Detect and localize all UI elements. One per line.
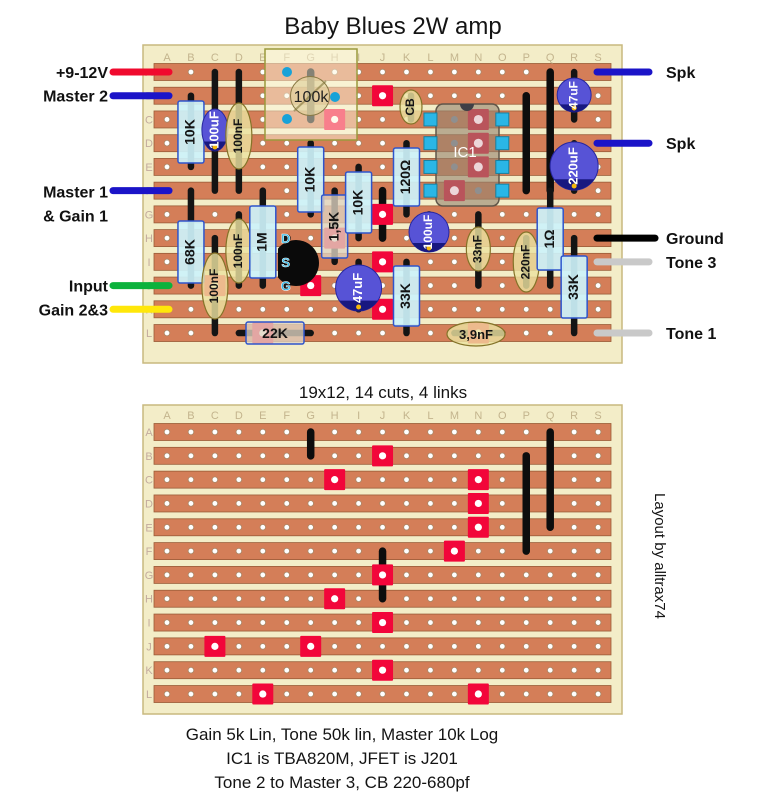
hole <box>500 69 506 75</box>
hole <box>428 691 434 697</box>
hole <box>188 307 194 313</box>
hole <box>164 140 170 146</box>
row-label: H <box>145 233 153 245</box>
ic-pad <box>496 137 509 150</box>
hole <box>500 429 506 435</box>
hole <box>595 596 601 602</box>
hole <box>452 691 458 697</box>
ic-pad <box>496 160 509 173</box>
hole <box>476 453 482 459</box>
hole <box>523 330 529 336</box>
column-label: A <box>163 410 171 422</box>
hole <box>188 691 194 697</box>
hole <box>452 501 458 507</box>
hole <box>500 524 506 530</box>
hole <box>284 644 290 650</box>
column-label: Q <box>546 52 555 64</box>
hole <box>260 620 266 626</box>
hole <box>595 644 601 650</box>
wire-label: Ground <box>666 231 724 248</box>
column-label: F <box>283 410 290 422</box>
component-value: 33nF <box>471 235 485 263</box>
hole <box>380 140 386 146</box>
hole <box>428 524 434 530</box>
wire-label: Input <box>69 279 109 296</box>
hole <box>308 691 314 697</box>
hole <box>356 691 362 697</box>
track-cut-hole <box>379 211 386 218</box>
column-label: N <box>474 410 482 422</box>
hole <box>523 572 529 578</box>
component-value: 3,9nF <box>459 327 493 342</box>
track-cut-hole <box>451 548 458 555</box>
hole <box>236 453 242 459</box>
wire-label: Master 1 <box>43 185 108 202</box>
track-cut-hole <box>259 690 266 697</box>
component-value: 220nF <box>518 245 532 280</box>
hole <box>523 429 529 435</box>
hole <box>260 429 266 435</box>
hole <box>212 524 218 530</box>
hole <box>428 501 434 507</box>
hole <box>164 477 170 483</box>
hole <box>500 596 506 602</box>
hole <box>380 644 386 650</box>
hole <box>500 691 506 697</box>
component-value: 22K <box>262 325 288 341</box>
ic-pin <box>474 162 483 171</box>
hole <box>404 235 410 241</box>
hole <box>164 429 170 435</box>
hole <box>284 140 290 146</box>
ic-label: IC1 <box>453 144 476 161</box>
hole <box>260 307 266 313</box>
hole <box>332 164 338 170</box>
hole <box>236 596 242 602</box>
hole <box>284 477 290 483</box>
hole <box>404 667 410 673</box>
jfet-pin-label: D <box>281 231 290 246</box>
hole <box>188 501 194 507</box>
hole <box>547 691 553 697</box>
wire-label: Tone 1 <box>666 326 716 343</box>
hole <box>188 572 194 578</box>
hole <box>404 572 410 578</box>
hole <box>404 548 410 554</box>
column-label: P <box>523 410 530 422</box>
wire-label: Spk <box>666 136 695 153</box>
hole <box>571 691 577 697</box>
hole <box>332 330 338 336</box>
component-value: 100uF <box>421 215 435 250</box>
hole <box>164 330 170 336</box>
row-label: L <box>146 689 152 701</box>
hole <box>500 235 506 241</box>
column-label: I <box>357 410 360 422</box>
hole <box>164 259 170 265</box>
hole <box>212 596 218 602</box>
hole <box>476 69 482 75</box>
hole <box>571 501 577 507</box>
hole <box>236 524 242 530</box>
jfet-pin-label: G <box>281 279 291 294</box>
hole <box>212 667 218 673</box>
component-value: 100nF <box>231 119 245 154</box>
notes-block: Gain 5k Lin, Tone 50k lin, Master 10k Lo… <box>0 723 722 795</box>
hole <box>356 501 362 507</box>
hole <box>356 453 362 459</box>
hole <box>500 548 506 554</box>
row-label: D <box>145 138 153 150</box>
hole <box>260 140 266 146</box>
board-stats-caption: 19x12, 14 cuts, 4 links <box>3 383 760 403</box>
column-label: K <box>403 52 411 64</box>
hole <box>164 572 170 578</box>
hole <box>284 548 290 554</box>
row-label: H <box>145 594 153 606</box>
hole <box>404 69 410 75</box>
pot-lug <box>282 114 292 124</box>
hole <box>188 667 194 673</box>
hole <box>500 283 506 289</box>
hole <box>428 453 434 459</box>
hole <box>356 330 362 336</box>
hole <box>188 524 194 530</box>
component-value: 10K <box>349 190 365 216</box>
hole <box>356 477 362 483</box>
row-label: D <box>145 498 153 510</box>
hole <box>380 691 386 697</box>
hole <box>236 572 242 578</box>
hole <box>404 477 410 483</box>
hole <box>595 548 601 554</box>
hole <box>452 667 458 673</box>
track-cut-hole <box>379 571 386 578</box>
row-label: K <box>145 665 153 677</box>
column-label: E <box>259 410 266 422</box>
hole <box>404 644 410 650</box>
component-value: CB <box>403 98 417 116</box>
ic-pin <box>451 163 458 170</box>
hole <box>500 667 506 673</box>
hole <box>452 259 458 265</box>
hole <box>260 548 266 554</box>
hole <box>332 667 338 673</box>
component-value: 33K <box>565 274 581 300</box>
hole <box>476 620 482 626</box>
cap-polarity-mark <box>356 305 361 310</box>
hole <box>547 596 553 602</box>
hole <box>500 572 506 578</box>
hole <box>595 501 601 507</box>
column-label: C <box>211 410 219 422</box>
hole <box>428 307 434 313</box>
hole <box>452 453 458 459</box>
hole <box>476 644 482 650</box>
hole <box>284 596 290 602</box>
hole <box>212 453 218 459</box>
component-value: 47uF <box>566 81 580 109</box>
hole <box>260 164 266 170</box>
hole <box>404 524 410 530</box>
column-label: R <box>570 52 578 64</box>
hole <box>571 596 577 602</box>
hole <box>428 572 434 578</box>
hole <box>452 524 458 530</box>
column-label: R <box>570 410 578 422</box>
hole <box>595 212 601 218</box>
hole <box>356 140 362 146</box>
hole <box>452 283 458 289</box>
column-label: D <box>235 410 243 422</box>
hole <box>236 429 242 435</box>
hole <box>380 501 386 507</box>
hole <box>188 330 194 336</box>
hole <box>212 477 218 483</box>
hole <box>260 572 266 578</box>
hole <box>212 548 218 554</box>
component-value: 33K <box>397 283 413 309</box>
hole <box>308 235 314 241</box>
hole <box>428 477 434 483</box>
hole <box>476 572 482 578</box>
hole <box>164 212 170 218</box>
hole <box>595 691 601 697</box>
hole <box>571 524 577 530</box>
hole <box>332 644 338 650</box>
hole <box>452 307 458 313</box>
column-label: N <box>474 52 482 64</box>
hole <box>500 212 506 218</box>
hole <box>452 93 458 99</box>
column-label: L <box>427 52 433 64</box>
hole <box>164 164 170 170</box>
wire-label: +9-12V <box>56 65 108 82</box>
hole <box>380 69 386 75</box>
ic-pad <box>424 113 437 126</box>
hole <box>428 620 434 626</box>
hole <box>236 644 242 650</box>
component-value: 10K <box>182 119 198 145</box>
pot-lug <box>330 92 340 102</box>
component-value: 100uF <box>206 111 221 149</box>
hole <box>595 620 601 626</box>
hole <box>571 477 577 483</box>
track-cut-hole <box>331 476 338 483</box>
hole <box>452 69 458 75</box>
hole <box>284 212 290 218</box>
column-label: M <box>450 52 459 64</box>
hole <box>428 429 434 435</box>
hole <box>356 644 362 650</box>
wire-label: & Gain 1 <box>43 209 108 226</box>
hole <box>332 140 338 146</box>
column-label: P <box>523 52 530 64</box>
hole <box>164 691 170 697</box>
hole <box>500 307 506 313</box>
column-label: L <box>427 410 433 422</box>
track-cut-hole <box>331 595 338 602</box>
wire-label: Spk <box>666 65 695 82</box>
hole <box>428 548 434 554</box>
hole <box>452 620 458 626</box>
hole <box>428 259 434 265</box>
hole <box>212 501 218 507</box>
hole <box>452 572 458 578</box>
hole <box>500 644 506 650</box>
hole <box>523 644 529 650</box>
ic-pad <box>496 113 509 126</box>
hole <box>260 667 266 673</box>
hole <box>380 117 386 123</box>
note-line: Gain 5k Lin, Tone 50k lin, Master 10k Lo… <box>0 723 722 747</box>
hole <box>380 477 386 483</box>
column-label: A <box>163 52 171 64</box>
hole <box>452 477 458 483</box>
ic-pad <box>424 160 437 173</box>
row-label: E <box>145 162 152 174</box>
track-cut-hole <box>307 282 314 289</box>
hole <box>284 188 290 194</box>
column-label: J <box>380 410 386 422</box>
hole <box>500 620 506 626</box>
hole <box>164 667 170 673</box>
hole <box>428 644 434 650</box>
track-cut-hole <box>475 690 482 697</box>
hole <box>236 667 242 673</box>
hole <box>547 644 553 650</box>
ic-pin <box>474 115 483 124</box>
hole <box>500 477 506 483</box>
column-label: O <box>498 52 507 64</box>
hole <box>308 667 314 673</box>
hole <box>452 212 458 218</box>
hole <box>332 429 338 435</box>
hole <box>428 667 434 673</box>
column-label: Q <box>546 410 555 422</box>
hole <box>523 69 529 75</box>
hole <box>571 620 577 626</box>
track-cut-hole <box>475 476 482 483</box>
hole <box>260 501 266 507</box>
hole <box>212 572 218 578</box>
hole <box>236 477 242 483</box>
hole <box>500 453 506 459</box>
hole <box>476 429 482 435</box>
hole <box>404 429 410 435</box>
ic-pad <box>424 184 437 197</box>
hole <box>284 501 290 507</box>
hole <box>308 572 314 578</box>
hole <box>595 93 601 99</box>
hole <box>188 596 194 602</box>
hole <box>188 429 194 435</box>
row-label: G <box>145 209 154 221</box>
hole <box>284 164 290 170</box>
column-label: K <box>403 410 411 422</box>
pot-lug <box>282 67 292 77</box>
row-label: I <box>147 257 150 269</box>
hole <box>500 259 506 265</box>
hole <box>571 453 577 459</box>
hole <box>476 93 482 99</box>
column-label: H <box>331 410 339 422</box>
hole <box>308 501 314 507</box>
hole <box>547 667 553 673</box>
hole <box>356 572 362 578</box>
hole <box>523 620 529 626</box>
hole <box>236 620 242 626</box>
component-value: 68K <box>182 239 198 265</box>
hole <box>164 596 170 602</box>
hole <box>380 330 386 336</box>
hole <box>452 644 458 650</box>
hole <box>595 307 601 313</box>
hole <box>332 548 338 554</box>
hole <box>571 644 577 650</box>
hole <box>595 188 601 194</box>
column-label: B <box>187 52 194 64</box>
component-value: 100nF <box>207 269 221 304</box>
hole <box>164 548 170 554</box>
hole <box>284 453 290 459</box>
hole <box>284 429 290 435</box>
track-cut-hole <box>475 524 482 531</box>
hole <box>356 667 362 673</box>
ic-pin <box>450 186 459 195</box>
hole <box>212 691 218 697</box>
hole <box>236 691 242 697</box>
track-cut-hole <box>379 306 386 313</box>
column-label: S <box>594 52 601 64</box>
hole <box>332 572 338 578</box>
component-value: 1Ω <box>541 229 557 248</box>
hole <box>571 212 577 218</box>
hole <box>260 644 266 650</box>
hole <box>380 429 386 435</box>
note-line: Tone 2 to Master 3, CB 220-680pf <box>0 771 722 795</box>
column-label: G <box>306 410 315 422</box>
hole <box>595 117 601 123</box>
hole <box>308 548 314 554</box>
component-value: 100nF <box>231 234 245 269</box>
hole <box>380 164 386 170</box>
track-cut-hole <box>307 643 314 650</box>
ic-pad <box>424 137 437 150</box>
hole <box>284 572 290 578</box>
hole <box>356 596 362 602</box>
hole <box>571 667 577 673</box>
hole <box>595 667 601 673</box>
ic-pad <box>496 184 509 197</box>
component-value: 100k <box>294 89 330 106</box>
hole <box>332 501 338 507</box>
hole <box>212 212 218 218</box>
hole <box>452 596 458 602</box>
track-cut-hole <box>475 500 482 507</box>
track-cut-hole <box>211 643 218 650</box>
hole <box>476 548 482 554</box>
hole <box>500 93 506 99</box>
hole <box>595 477 601 483</box>
column-label: C <box>211 52 219 64</box>
hole <box>476 667 482 673</box>
hole <box>595 572 601 578</box>
hole <box>547 572 553 578</box>
column-label: S <box>594 410 601 422</box>
hole <box>332 453 338 459</box>
hole <box>356 620 362 626</box>
